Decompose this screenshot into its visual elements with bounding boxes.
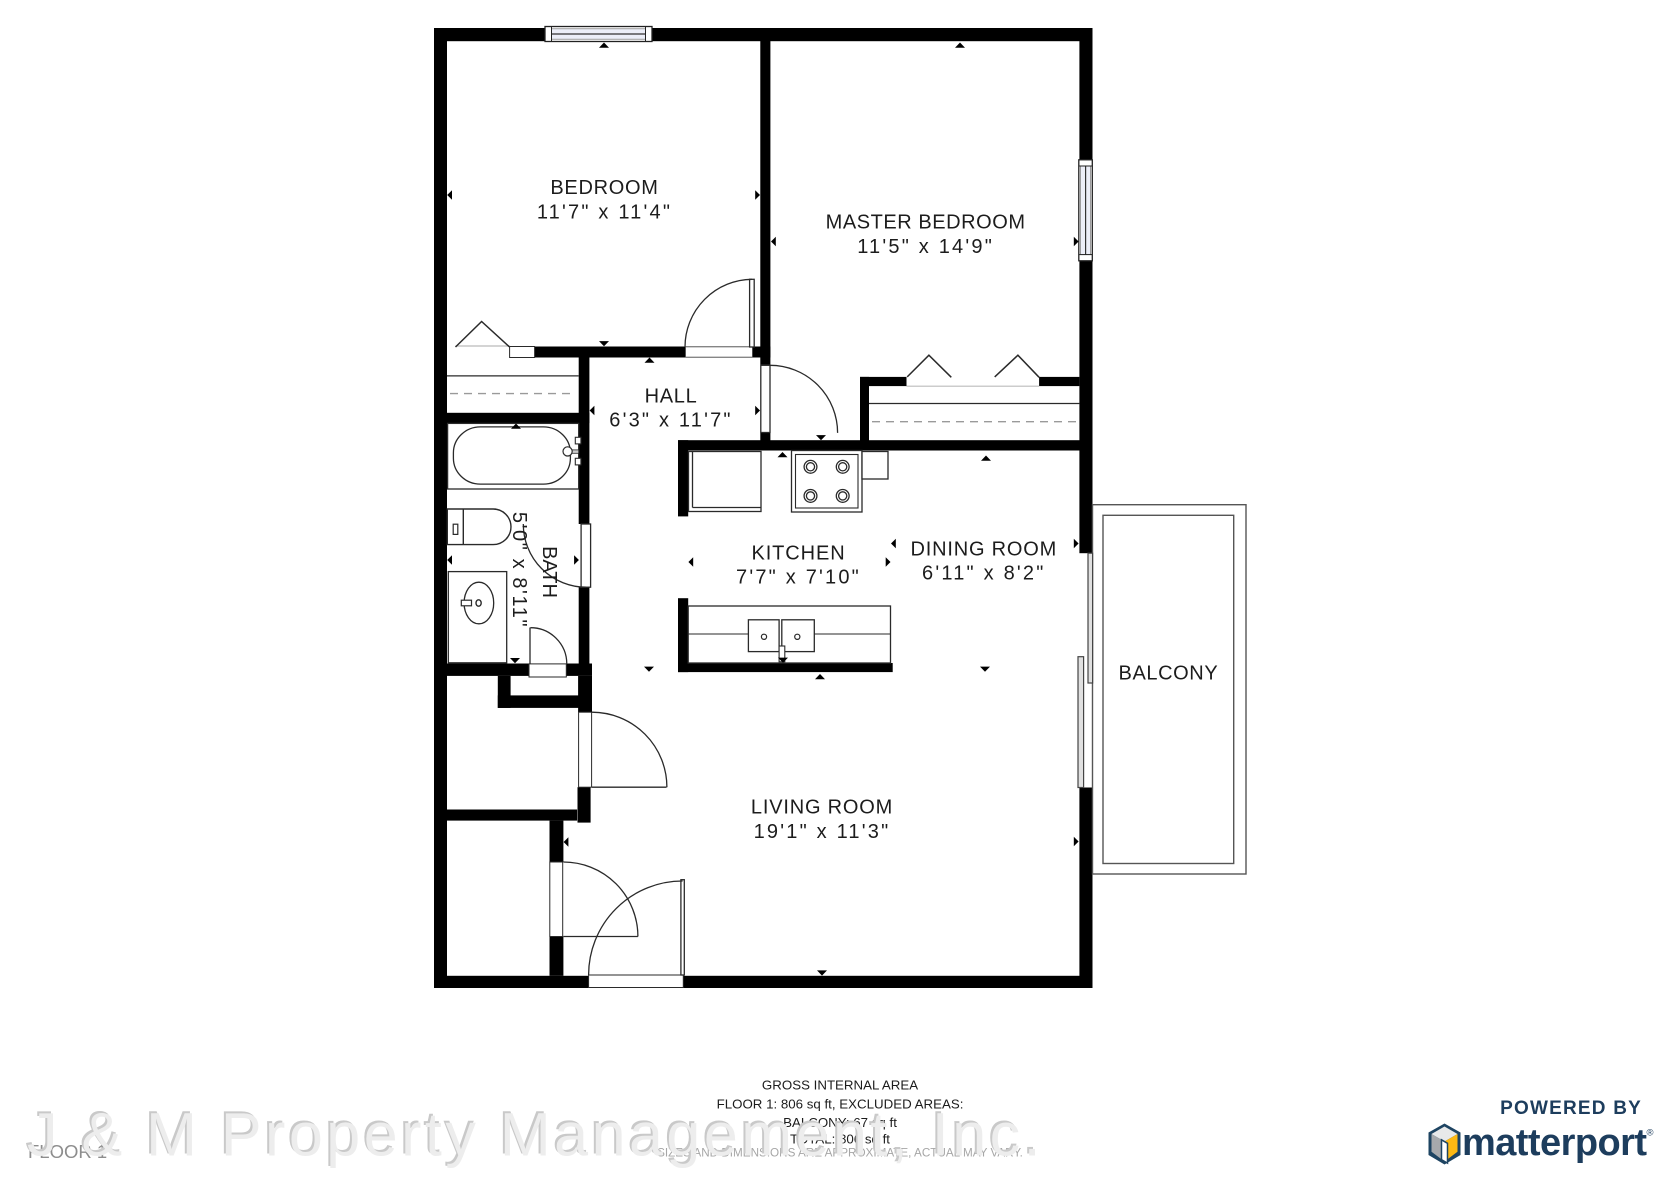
svg-text:BALCONY: BALCONY: [1119, 663, 1219, 685]
svg-text:GROSS INTERNAL AREA: GROSS INTERNAL AREA: [762, 1077, 918, 1092]
svg-text:LIVING ROOM: LIVING ROOM: [751, 797, 893, 819]
svg-text:®: ®: [1647, 1128, 1654, 1139]
svg-text:11'5" x 14'9": 11'5" x 14'9": [857, 236, 994, 258]
svg-text:6'3" x 11'7": 6'3" x 11'7": [609, 409, 732, 431]
svg-text:DINING ROOM: DINING ROOM: [911, 539, 1058, 561]
svg-text:MASTER BEDROOM: MASTER BEDROOM: [826, 212, 1026, 234]
svg-text:19'1" x 11'3": 19'1" x 11'3": [754, 821, 891, 843]
svg-text:7'7" x 7'10": 7'7" x 7'10": [736, 566, 861, 588]
svg-text:matterport: matterport: [1462, 1122, 1647, 1164]
svg-text:BATH: BATH: [538, 546, 560, 598]
svg-text:KITCHEN: KITCHEN: [751, 543, 845, 565]
svg-text:5'0" x 8'11": 5'0" x 8'11": [508, 512, 530, 628]
svg-text:HALL: HALL: [645, 385, 698, 407]
svg-text:J & M Property Management, Inc: J & M Property Management, Inc.: [27, 1101, 1044, 1169]
svg-text:POWERED BY: POWERED BY: [1500, 1098, 1642, 1119]
svg-text:6'11" x 8'2": 6'11" x 8'2": [922, 563, 1045, 585]
svg-text:11'7" x 11'4": 11'7" x 11'4": [537, 201, 672, 223]
svg-text:BEDROOM: BEDROOM: [550, 177, 658, 199]
